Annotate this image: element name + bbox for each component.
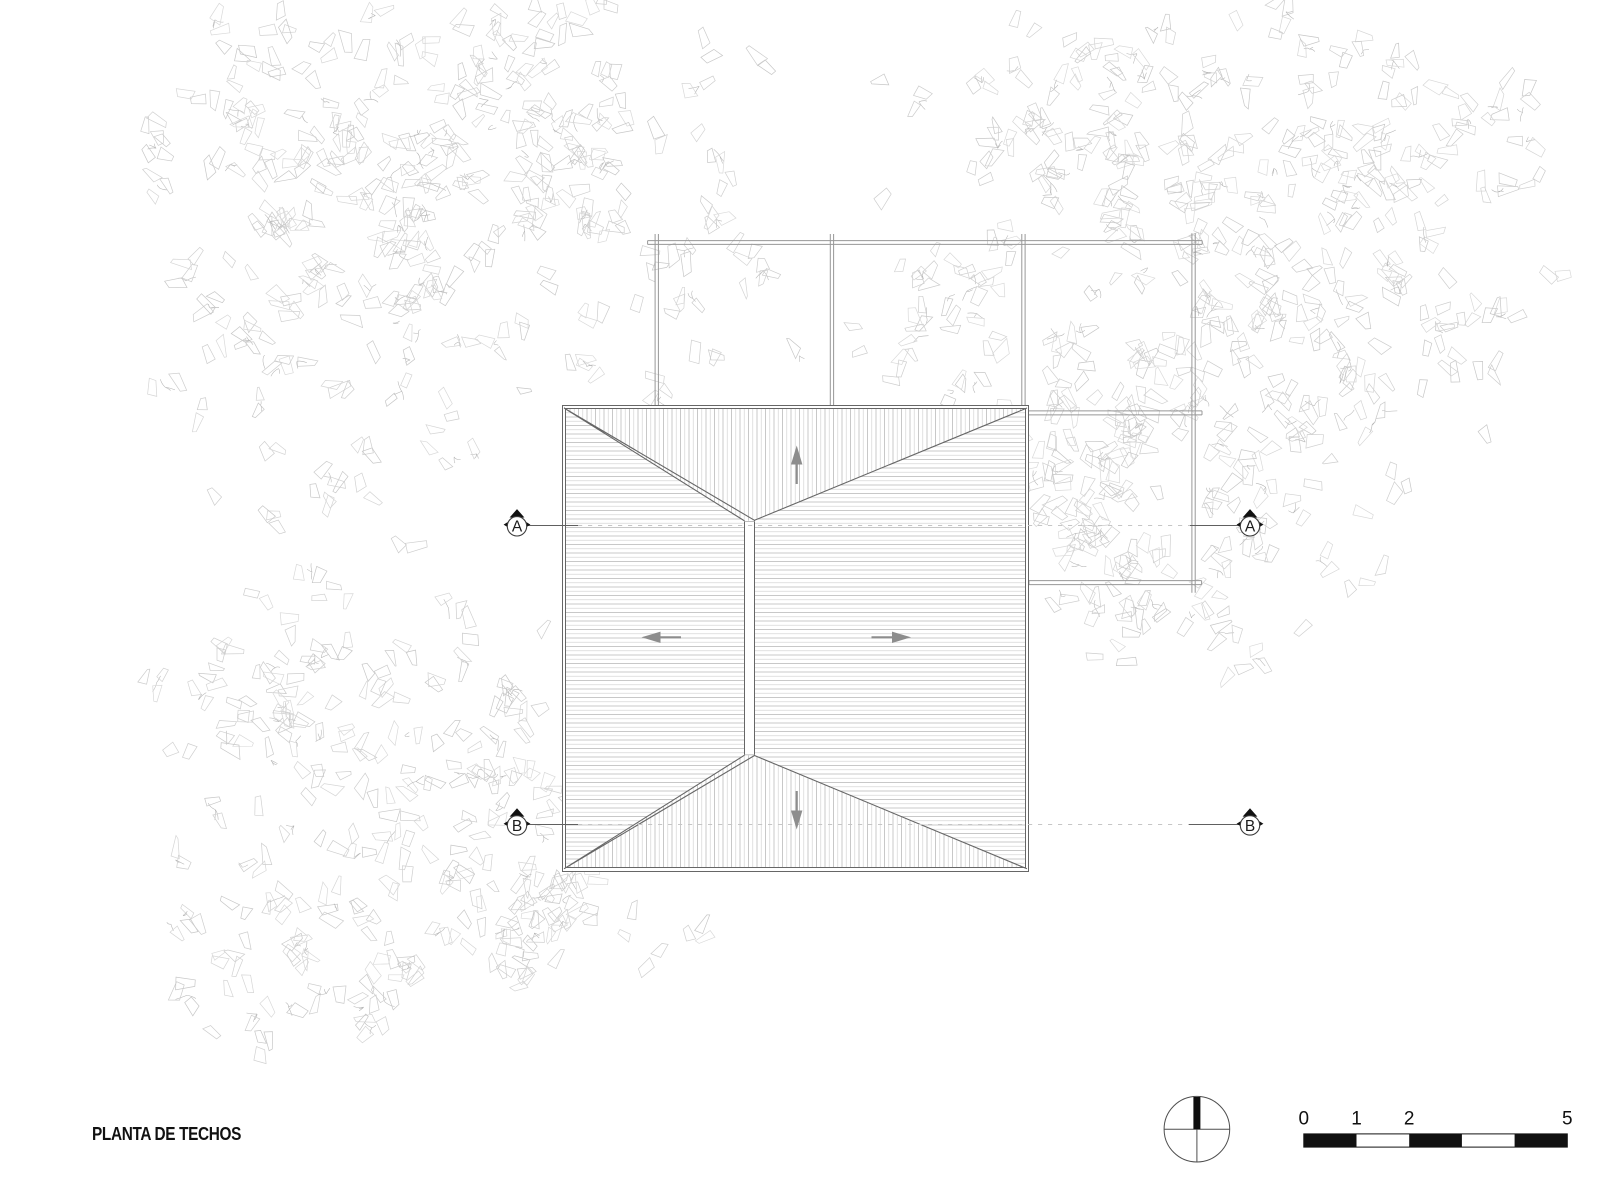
svg-text:0: 0 bbox=[1299, 1109, 1310, 1130]
svg-text:A: A bbox=[1245, 519, 1256, 536]
svg-text:2: 2 bbox=[1404, 1109, 1415, 1130]
svg-text:A: A bbox=[512, 519, 523, 536]
svg-text:B: B bbox=[512, 818, 522, 835]
svg-text:B: B bbox=[1245, 818, 1255, 835]
svg-text:1: 1 bbox=[1351, 1109, 1362, 1130]
svg-text:5: 5 bbox=[1562, 1109, 1573, 1130]
svg-text:PLANTA DE TECHOS: PLANTA DE TECHOS bbox=[92, 1124, 241, 1145]
